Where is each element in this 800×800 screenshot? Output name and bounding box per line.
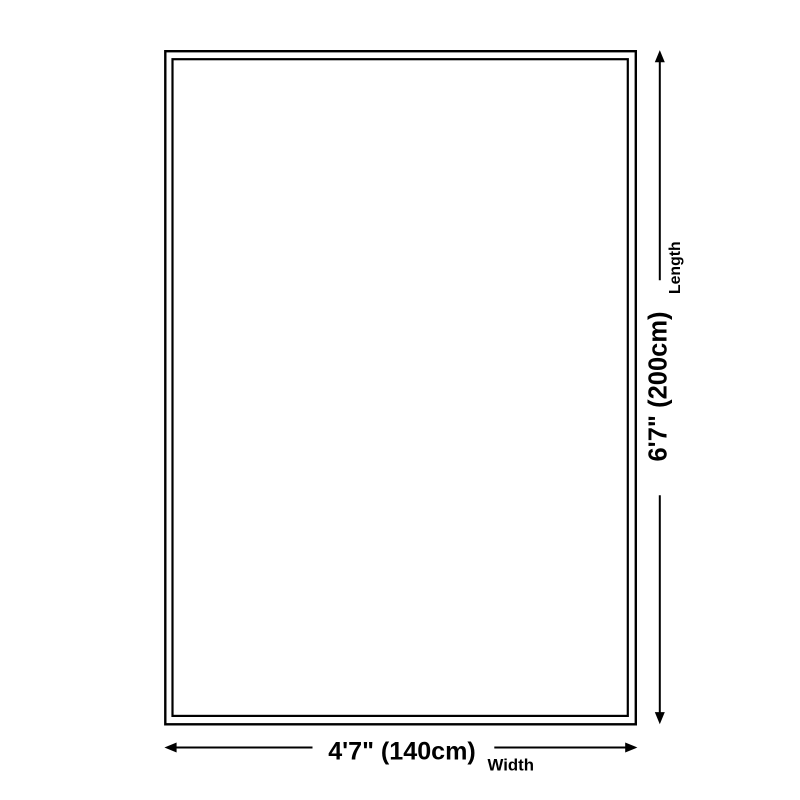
svg-text:Width: Width [488, 755, 534, 774]
svg-text:4'7" (140cm): 4'7" (140cm) [328, 738, 476, 766]
svg-text:Length: Length [667, 241, 684, 294]
svg-text:6'7" (200cm): 6'7" (200cm) [645, 312, 673, 462]
